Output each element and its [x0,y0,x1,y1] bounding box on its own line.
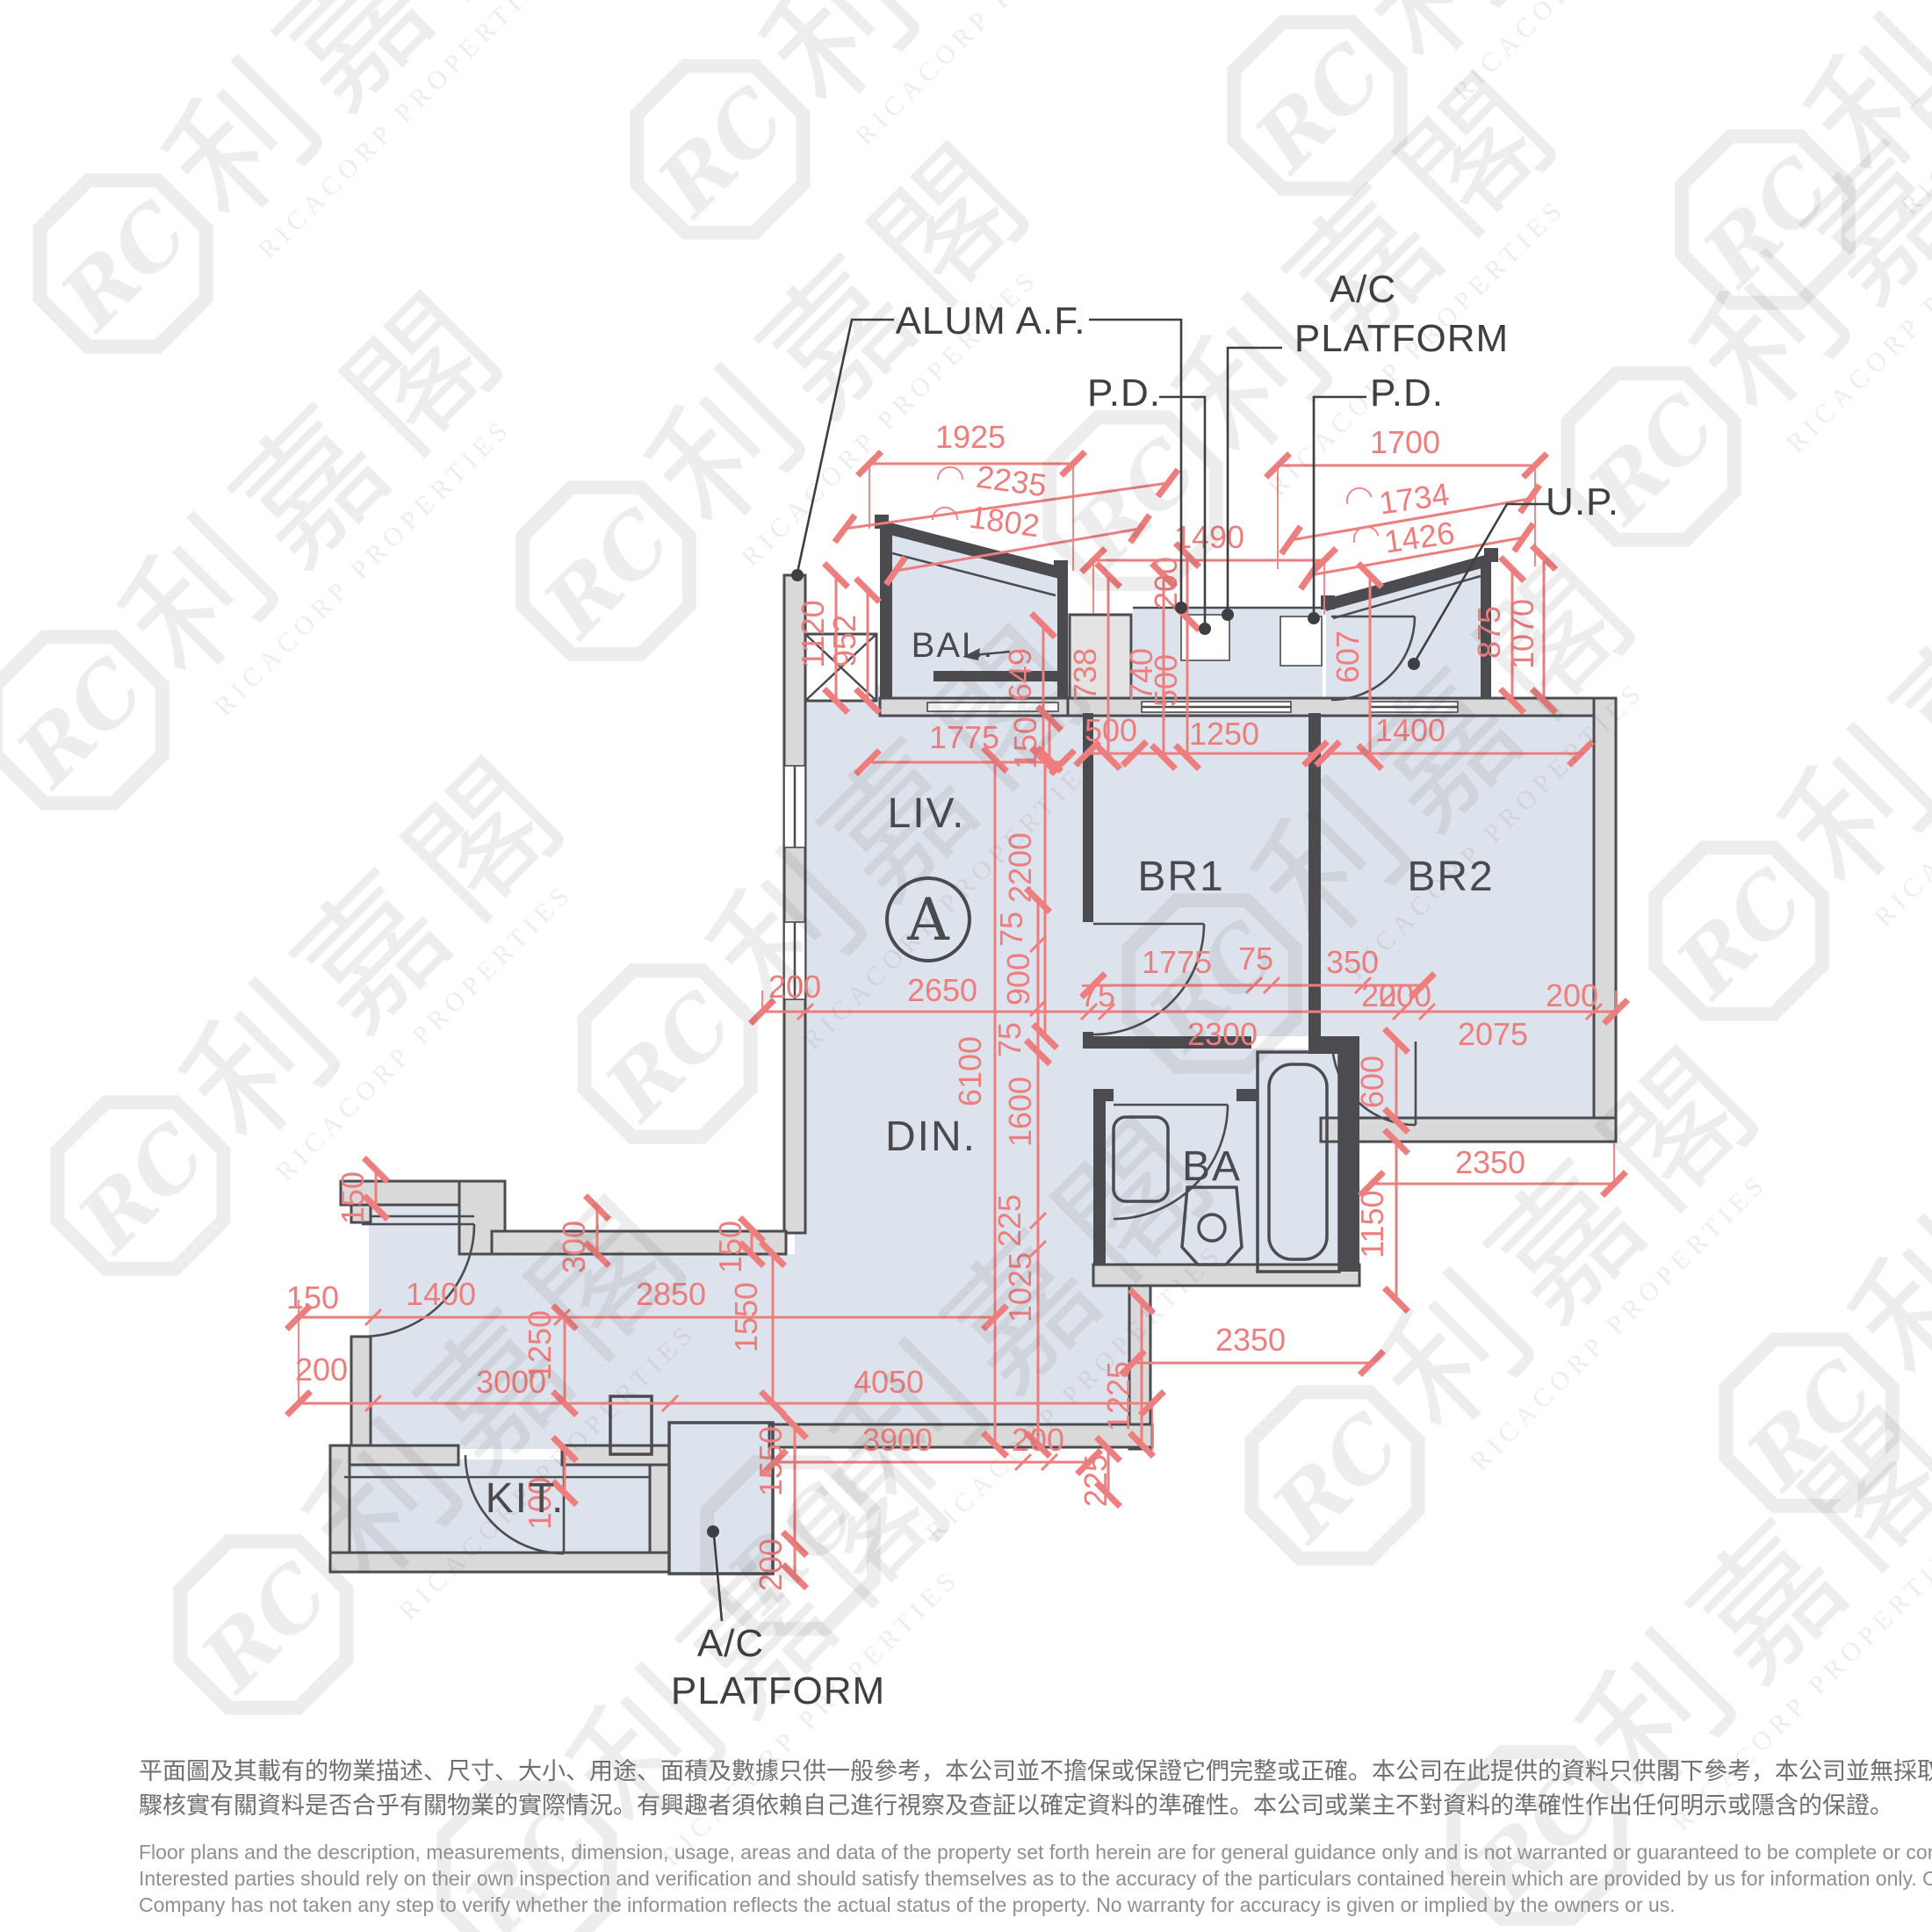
dim-2235: 2235 [974,458,1049,504]
dim-1700: 1700 [1370,424,1440,460]
dim-225-v: 225 [1078,1454,1114,1507]
dim-200-e: 200 [1379,977,1431,1013]
dim-75-a: 75 [993,912,1029,947]
disclaimer-zh-line2: 驟核實有關資料是否合乎有關物業的實際情況。有興趣者須依賴自己進行視察及查証以確定… [139,1789,1825,1823]
dim-1400-cor: 1400 [406,1276,476,1312]
svg-text:利嘉閣: 利嘉閣 [95,257,541,703]
watermark-tile: RC 利嘉閣 RICACORP PROPERTIES [5,0,606,398]
watermark-tile: RC 利嘉閣 RICACORP PROPERTIES [1621,465,1932,1066]
dim-200-g: 200 [295,1352,348,1388]
dim-1550-c: 1550 [728,1282,764,1352]
disclaimer-zh-line1: 平面圖及其載有的物業描述、尺寸、大小、用途、面積及數據只供一般參考，本公司並不擔… [139,1755,1825,1789]
disclaimer-en-line3: Company has not taken any step to verify… [139,1892,1825,1918]
disclaimer-en-line1: Floor plans and the description, measure… [139,1839,1825,1865]
label-din: DIN. [885,1114,977,1160]
dim-1250: 1250 [1189,716,1259,752]
disclaimer: 平面圖及其載有的物業描述、尺寸、大小、用途、面積及數據只供一般參考，本公司並不擔… [139,1755,1825,1918]
dim-75-d: 75 [1080,977,1115,1013]
dim-600: 600 [1354,1056,1390,1108]
dim-607: 607 [1330,631,1366,683]
dim-6100: 6100 [952,1036,988,1107]
dim-2650: 2650 [907,972,977,1008]
dim-1120: 1120 [795,600,831,667]
dim-1802: 1802 [967,499,1042,544]
dim-1925: 1925 [935,419,1006,455]
disclaimer-en-line2: Interested parties should rely on their … [139,1865,1825,1892]
svg-text:利嘉閣: 利嘉閣 [156,723,602,1169]
dim-2075: 2075 [1458,1016,1528,1052]
dim-500-v: 500 [1148,654,1184,707]
dim-200-f: 200 [1546,977,1598,1013]
callout-pd-left: P.D. [1087,371,1161,415]
floorplan-page: 1925 2235 1802 1490 1700 1734 1426 1120 … [0,0,1932,1932]
dim-900: 900 [1000,953,1036,1006]
dim-952: 952 [826,615,862,667]
dim-1600: 1600 [1002,1077,1038,1147]
dim-2350-up: 2350 [1455,1144,1525,1180]
label-br1: BR1 [1137,854,1224,900]
dim-75-b: 75 [991,1022,1027,1057]
east-wall [1594,698,1616,1142]
dim-150-h: 150 [286,1280,339,1316]
svg-text:利嘉閣: 利嘉閣 [139,0,585,248]
floorplan-svg: 1925 2235 1802 1490 1700 1734 1426 1120 … [0,0,1932,1932]
dim-1150: 1150 [1354,1190,1390,1258]
dim-150-c: 150 [335,1171,371,1224]
dim-2350-low: 2350 [1215,1322,1286,1358]
